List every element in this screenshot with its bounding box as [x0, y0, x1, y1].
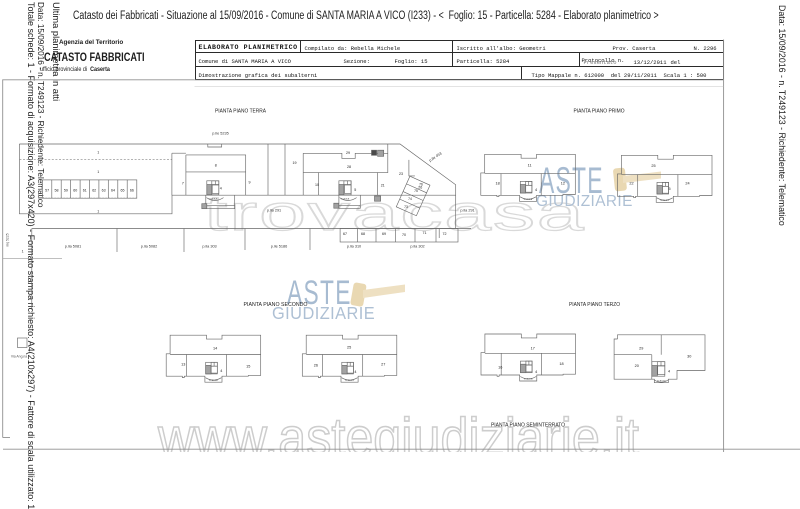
svg-text:4: 4 — [535, 188, 537, 192]
svg-text:64: 64 — [111, 188, 115, 192]
svg-text:26: 26 — [314, 363, 318, 367]
svg-text:p.lle 5235: p.lle 5235 — [212, 132, 228, 136]
svg-text:24: 24 — [685, 182, 689, 186]
svg-text:25: 25 — [651, 164, 655, 168]
svg-text:63: 63 — [102, 188, 106, 192]
svg-text:19: 19 — [293, 161, 297, 165]
svg-text:PIANTA PIANO TERZO: PIANTA PIANO TERZO — [569, 302, 620, 308]
svg-text:9: 9 — [249, 180, 251, 184]
svg-text:PIANTA PIANO PRIMO: PIANTA PIANO PRIMO — [574, 109, 625, 115]
svg-text:4: 4 — [354, 370, 356, 374]
svg-text:16: 16 — [498, 366, 502, 370]
svg-text:74: 74 — [408, 197, 412, 201]
svg-text:p.lla 302: p.lla 302 — [410, 245, 424, 249]
svg-text:PIANTA PIANO SECONDO: PIANTA PIANO SECONDO — [244, 302, 308, 308]
svg-text:11: 11 — [528, 163, 532, 167]
svg-text:22: 22 — [629, 182, 633, 186]
svg-text:12: 12 — [561, 181, 565, 185]
svg-text:SCALA A: SCALA A — [524, 198, 533, 201]
svg-text:68: 68 — [361, 232, 365, 236]
svg-text:SCALA B: SCALA B — [660, 199, 669, 202]
svg-text:p.lle 5186: p.lle 5186 — [271, 245, 287, 249]
svg-text:5: 5 — [668, 187, 670, 191]
svg-text:23: 23 — [399, 172, 403, 176]
svg-text:PIANTA PIANO TERRA: PIANTA PIANO TERRA — [215, 109, 267, 115]
svg-text:21: 21 — [381, 184, 385, 188]
svg-text:SCALA A: SCALA A — [524, 378, 533, 381]
svg-text:8: 8 — [215, 164, 217, 168]
svg-text:p.lle 453: p.lle 453 — [428, 152, 442, 163]
svg-text:75: 75 — [414, 189, 418, 193]
svg-text:PIANTA PIANO SEMINTERRATO: PIANTA PIANO SEMINTERRATO — [491, 423, 565, 429]
svg-text:7: 7 — [182, 181, 184, 185]
svg-text:71: 71 — [423, 231, 427, 235]
svg-text:60: 60 — [73, 188, 77, 192]
svg-text:1: 1 — [22, 250, 24, 254]
svg-text:SCALA B: SCALA B — [657, 379, 666, 382]
svg-text:27: 27 — [381, 363, 385, 367]
svg-text:p.lla 5082: p.lla 5082 — [141, 245, 157, 249]
svg-text:5: 5 — [354, 188, 356, 192]
svg-text:4: 4 — [220, 187, 222, 191]
svg-text:30: 30 — [687, 354, 691, 358]
svg-text:29: 29 — [639, 347, 643, 351]
svg-text:Via Ang.na: Via Ang.na — [11, 355, 27, 359]
svg-text:61: 61 — [83, 188, 87, 192]
svg-text:29: 29 — [346, 151, 350, 155]
svg-text:70: 70 — [402, 233, 406, 237]
svg-text:66: 66 — [130, 188, 134, 192]
svg-text:58: 58 — [55, 188, 59, 192]
svg-text:18: 18 — [559, 362, 563, 366]
svg-text:p.lla 5081: p.lla 5081 — [65, 245, 81, 249]
svg-text:14: 14 — [213, 346, 217, 350]
svg-text:4: 4 — [668, 369, 670, 373]
svg-text:18: 18 — [495, 181, 499, 185]
svg-text:73: 73 — [404, 205, 408, 209]
svg-text:59: 59 — [64, 188, 68, 192]
svg-text:p.lla 291: p.lla 291 — [460, 209, 474, 213]
svg-text:62: 62 — [92, 188, 96, 192]
svg-text:p.lla 303: p.lla 303 — [202, 245, 216, 249]
svg-text:p.lla 310: p.lla 310 — [347, 245, 361, 249]
svg-text:SCALA A: SCALA A — [209, 197, 218, 200]
svg-text:69: 69 — [382, 232, 386, 236]
svg-text:1: 1 — [97, 170, 99, 174]
svg-text:SCALA B: SCALA B — [345, 379, 354, 382]
svg-text:1: 1 — [97, 151, 99, 155]
svg-text:SCALA A: SCALA A — [209, 379, 218, 382]
svg-text:13: 13 — [181, 363, 185, 367]
svg-text:15: 15 — [246, 365, 250, 369]
svg-text:4: 4 — [220, 369, 222, 373]
svg-text:mq 5225: mq 5225 — [6, 233, 10, 246]
svg-text:57: 57 — [45, 188, 49, 192]
svg-text:20: 20 — [635, 364, 639, 368]
svg-text:1: 1 — [97, 210, 99, 214]
svg-text:SCALA B: SCALA B — [341, 197, 350, 200]
svg-text:10: 10 — [315, 183, 319, 187]
svg-text:76: 76 — [419, 182, 423, 186]
svg-text:www.astegiudiziarie.it: www.astegiudiziarie.it — [157, 407, 639, 452]
svg-text:67: 67 — [343, 232, 347, 236]
svg-text:17: 17 — [531, 346, 535, 350]
svg-text:28: 28 — [347, 165, 351, 169]
svg-text:p.lla 291: p.lla 291 — [267, 209, 281, 213]
svg-text:65: 65 — [121, 188, 125, 192]
svg-text:4: 4 — [535, 370, 537, 374]
svg-text:72: 72 — [443, 232, 447, 236]
svg-text:25: 25 — [347, 346, 351, 350]
